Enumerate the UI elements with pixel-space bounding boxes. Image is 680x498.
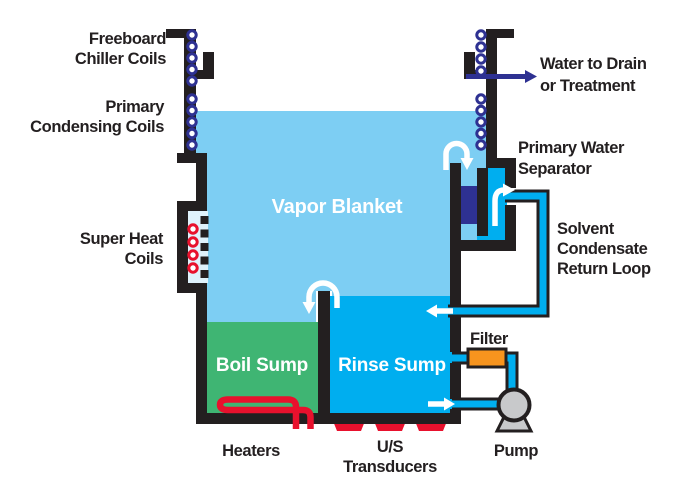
freeboard-chiller-coils-right-icon bbox=[477, 31, 485, 75]
primary-condensing-label-line2: Condensing Coils bbox=[30, 118, 164, 136]
vapor-blanket-label: Vapor Blanket bbox=[272, 196, 403, 218]
degreaser-diagram: Freeboard Chiller Coils Primary Condensi… bbox=[0, 0, 680, 498]
transducers-label-line1: U/S bbox=[377, 438, 404, 456]
water-drain-label-line2: or Treatment bbox=[540, 77, 636, 95]
sump-weir-wall bbox=[318, 291, 330, 413]
return-loop-label-line2: Condensate bbox=[557, 240, 648, 258]
return-loop-label-line1: Solvent bbox=[557, 220, 615, 238]
tank-bottom-wall bbox=[196, 413, 461, 424]
boil-sump-label: Boil Sump bbox=[216, 355, 308, 376]
water-drain-label-line1: Water to Drain bbox=[540, 55, 647, 73]
freeboard-chiller-label-line2: Chiller Coils bbox=[75, 50, 166, 68]
primary-condensing-coils-right-icon bbox=[477, 95, 485, 149]
primary-condensing-label-line1: Primary bbox=[105, 98, 165, 116]
pump-icon bbox=[497, 390, 531, 432]
freeboard-chiller-coils-icon bbox=[188, 31, 196, 85]
separator-label-line2: Separator bbox=[518, 160, 592, 178]
transducers-label-line2: Transducers bbox=[343, 458, 437, 476]
pump-label: Pump bbox=[494, 442, 539, 460]
super-heat-label-line1: Super Heat bbox=[80, 230, 164, 248]
filter-icon bbox=[468, 349, 506, 367]
separator-water-layer bbox=[459, 186, 480, 224]
filter-label: Filter bbox=[470, 330, 509, 348]
diagram-canvas: Freeboard Chiller Coils Primary Condensi… bbox=[0, 0, 680, 498]
separator-label-line1: Primary Water bbox=[518, 139, 625, 157]
freeboard-chiller-label-line1: Freeboard bbox=[89, 30, 166, 48]
primary-condensing-coils-left-icon bbox=[188, 95, 196, 149]
super-heat-label-line2: Coils bbox=[125, 250, 164, 268]
return-loop-label-line3: Return Loop bbox=[557, 260, 651, 278]
heaters-label: Heaters bbox=[222, 442, 280, 460]
rinse-sump-label: Rinse Sump bbox=[338, 355, 446, 376]
